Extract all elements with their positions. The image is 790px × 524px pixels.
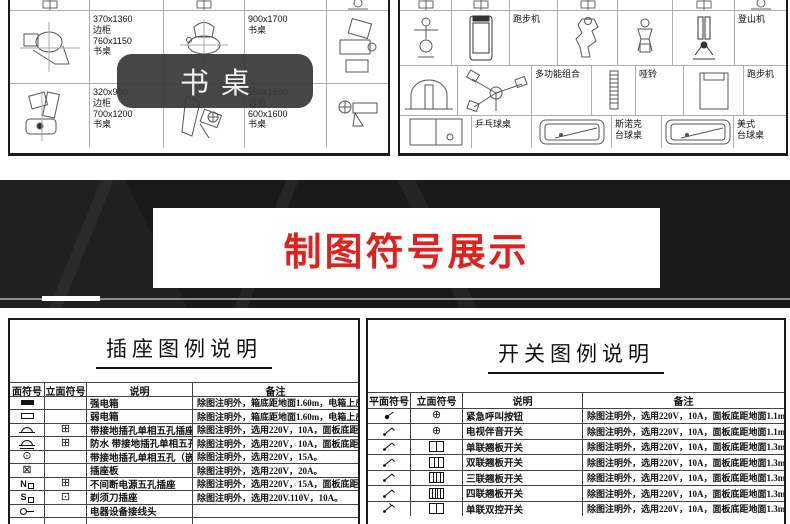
cad-catalog-page: 370x1360边柜760x1150书桌900x1700书桌320x900边柜7… — [0, 0, 790, 524]
switch-plan-symbol — [382, 457, 396, 468]
shaver-socket-sub — [28, 497, 34, 503]
cad-label: 哑铃 — [636, 66, 684, 116]
cad-row: 乒乓球桌斯诺克台球桌美式台球桌 — [400, 116, 786, 148]
elevation-symbol-cell — [44, 517, 86, 524]
stub-line-drawing — [673, 0, 735, 11]
legend-header-cell: 平面符号 — [368, 392, 410, 408]
legend-description: 四联翘板开关 — [462, 485, 582, 501]
elevation-symbol-cell — [410, 485, 462, 501]
banner-title-box: 制图符号展示 — [153, 208, 660, 288]
spinner-drawing — [458, 66, 532, 116]
section-banner: 制图符号展示 — [0, 180, 790, 308]
legend-description: 单联双控开关 — [462, 501, 582, 517]
machine-drawing — [558, 11, 618, 66]
legend-description: 紧急呼叫按钮 — [462, 408, 582, 424]
cad-empty-cell — [245, 0, 327, 11]
pingpong-drawing — [400, 116, 472, 148]
elevation-symbol-cell: ⊕ — [410, 423, 462, 439]
legend-description: 电器设备接线头 — [86, 504, 192, 518]
rocker-1-gang-symbol — [429, 503, 444, 514]
legend-description: 不间断电源五孔插座 — [86, 477, 192, 491]
elevation-symbol-cell: ⊞ — [44, 436, 86, 450]
switch-legend-title: 开关图例说明 — [488, 338, 664, 374]
waterproof-socket-symbol — [21, 440, 33, 446]
stub-chair-drawing — [735, 0, 786, 11]
circle-cross-symbol: ⊕ — [432, 410, 441, 421]
plan-symbol-cell — [368, 501, 410, 517]
legend-description: 电视伴音开关 — [462, 423, 582, 439]
legend-note: 除图注明外，选用220V.110V，10A。 — [192, 490, 358, 504]
legend-description: 带接地插孔单相五孔（嵌入地面） — [86, 450, 192, 464]
socket-elevation-symbol: ⊞ — [61, 478, 70, 489]
plan-symbol-cell — [368, 470, 410, 486]
elevation-symbol-cell — [410, 470, 462, 486]
switch-plan-symbol — [382, 472, 396, 483]
legend-header-cell: 说明 — [462, 392, 582, 408]
plan-symbol-cell: S — [10, 490, 44, 504]
cad-empty-cell — [618, 0, 673, 11]
cad-label: 跑步机 — [510, 11, 558, 66]
legend-description: 弱电箱 — [86, 409, 192, 423]
rack-drawing — [684, 66, 744, 116]
cad-label: 斯诺克台球桌 — [612, 116, 662, 148]
socket-legend-table: 插座图例说明 面符号立面符号说明备注强电箱除图注明外，箱底距地面1.60m，电箱… — [8, 318, 360, 524]
elevation-symbol-cell: ⊞ — [44, 477, 86, 491]
elevation-symbol-cell — [44, 450, 86, 464]
legend-note: 除图注明外，选用220V，10A，面板底距地0.30m。 — [192, 423, 358, 437]
arch-drawing — [400, 66, 458, 116]
legend-header-cell: 备注 — [582, 392, 784, 408]
circle-cross-symbol: ⊕ — [432, 426, 441, 437]
legend-description: 三联翘板开关 — [462, 470, 582, 486]
plan-symbol-cell: N — [10, 477, 44, 491]
switch-plan-symbol — [382, 488, 396, 499]
button-plan-symbol — [383, 411, 395, 421]
weak-electric-box-symbol — [21, 413, 34, 419]
legend-note: 除图注明外，选用220V，10A，面板底距地面1.3m。 — [582, 485, 784, 501]
rocker-2-gang-symbol — [429, 457, 444, 468]
legend-description: 剃须刀插座 — [86, 490, 192, 504]
rocker-4-gang-symbol — [429, 488, 444, 499]
desk3-drawing — [327, 11, 388, 84]
elevation-symbol-cell: ⊞ — [44, 423, 86, 437]
gym-cad-panel: 跑步机登山机多功能组合哑铃跑步机乒乓球桌斯诺克台球桌美式台球桌 — [398, 0, 788, 156]
legend-description: 防水 带接地插孔单相五孔插座 — [86, 436, 192, 450]
legend-note: 除图注明外，箱底距地面1.60m，电箱上皮不高于2.0m。 — [192, 409, 358, 423]
switch-legend-table: 开关图例说明 平面符号立面符号说明备注⊕紧急呼叫按钮除图注明外，选用220V，1… — [366, 318, 786, 524]
elevation-symbol-cell — [44, 396, 86, 410]
socket-legend-title-row: 插座图例说明 — [10, 320, 358, 382]
desk1-drawing — [10, 11, 90, 84]
plan-symbol-cell: ⊠ — [10, 463, 44, 477]
banner-white-dash — [42, 296, 100, 301]
cad-label: 跑步机 — [744, 66, 786, 116]
plan-symbol-cell — [368, 423, 410, 439]
plan-symbol-cell — [368, 439, 410, 455]
plan-symbol-cell — [10, 409, 44, 423]
elevation-symbol-cell: ⊡ — [44, 490, 86, 504]
cad-label: 美式台球桌 — [734, 116, 786, 148]
legend-note: 除图注明外，选用220V，10A，面板底距地面1.3m。 — [582, 454, 784, 470]
floor-socket-symbol: ⊙ — [22, 451, 31, 462]
desk-tag-overlay[interactable]: 书桌 — [117, 54, 313, 108]
ups-socket-sub — [28, 483, 34, 489]
legend-note: 除图注明外，选用220V，10A，面板底距地0.30m。 — [192, 436, 358, 450]
desk4-drawing — [10, 84, 90, 148]
five-hole-socket-symbol — [21, 427, 33, 433]
legend-note: 除图注明外，选用220V，10A，面板底距地面1.1m。 — [582, 408, 784, 424]
billiard-drawing — [662, 116, 734, 148]
legend-description: 强电箱 — [86, 396, 192, 410]
legend-note: 除图注明外，选用220V，10A，面板底距地面1.3m。 — [582, 439, 784, 455]
legend-note: 除图注明外，选用220V，10A，面板底距地面1.3m。 — [582, 470, 784, 486]
stub-line-drawing — [10, 0, 90, 11]
switch-plan-symbol — [382, 426, 396, 437]
stub-line-drawing — [452, 0, 510, 11]
cad-empty-cell — [90, 0, 164, 11]
desk6-drawing — [327, 84, 388, 148]
switch-plan-symbol — [382, 441, 396, 452]
plan-symbol-cell — [10, 504, 44, 518]
cad-row — [400, 0, 786, 11]
elevation-symbol-cell — [44, 409, 86, 423]
socket-panel-symbol: ⊠ — [22, 465, 31, 476]
legend-note: 除图注明外，选用220V，15A。 — [192, 450, 358, 464]
legend-note: 除图注明外，箱底距地面1.60m，电箱上皮不高于2.0m。 — [192, 396, 358, 410]
elevation-symbol-cell — [410, 439, 462, 455]
elevation-symbol-cell: ⊕ — [410, 408, 462, 424]
banner-title: 制图符号展示 — [283, 221, 529, 276]
machine-sm-drawing — [618, 11, 673, 66]
shaver-socket-symbol: S — [20, 492, 26, 502]
legend-description — [86, 517, 192, 524]
legend-description: 带接地插孔单相五孔插座 — [86, 423, 192, 437]
legend-description: 插座板 — [86, 463, 192, 477]
socket-elevation-symbol: ⊞ — [61, 438, 70, 449]
legend-note: 除图注明外，选用220V，10A，面板底距地面1.3m。 — [582, 501, 784, 517]
cad-label: 登山机 — [735, 11, 786, 66]
socket-legend-grid: 面符号立面符号说明备注强电箱除图注明外，箱底距地面1.60m，电箱上皮不高于2.… — [10, 382, 358, 524]
treadmill-drawing — [452, 11, 510, 66]
legend-note: 除图注明外，选用220V，15A，面板底距地0.30m。 — [192, 477, 358, 491]
ups-socket-symbol: N — [20, 479, 27, 489]
switch-legend-title-row: 开关图例说明 — [368, 320, 784, 392]
connector-symbol — [20, 507, 35, 514]
legend-note: 除图注明外，选用220V，20A。 — [192, 463, 358, 477]
cad-row: 多功能组合哑铃跑步机 — [400, 66, 786, 116]
plan-symbol-cell — [368, 485, 410, 501]
elevation-symbol-cell — [44, 504, 86, 518]
cad-label: 乒乓球桌 — [472, 116, 532, 148]
plan-symbol-cell — [10, 436, 44, 450]
plan-symbol-cell — [10, 396, 44, 410]
shaver-elevation-symbol: ⊡ — [61, 492, 70, 503]
elevation-symbol-cell — [410, 501, 462, 517]
legend-description: 双联翘板开关 — [462, 454, 582, 470]
strong-electric-box-symbol — [21, 400, 34, 405]
legend-note: 除图注明外，选用220V，10A，面板底距地面1.1m。 — [582, 423, 784, 439]
plan-symbol-cell — [368, 454, 410, 470]
stub-line-drawing — [400, 0, 452, 11]
stub-line-drawing — [558, 0, 618, 11]
legend-description: 单联翘板开关 — [462, 439, 582, 455]
billiard-drawing — [532, 116, 612, 148]
stub-chair-drawing — [327, 0, 388, 11]
legend-header-cell: 立面符号 — [410, 392, 462, 408]
cad-row: 跑步机登山机 — [400, 11, 786, 66]
socket-legend-title: 插座图例说明 — [96, 333, 272, 369]
plan-symbol-cell: ⊙ — [10, 450, 44, 464]
stub-line-drawing — [164, 0, 245, 11]
rocker-3-gang-symbol — [429, 472, 444, 483]
rocker-1-gang-symbol — [429, 441, 444, 452]
legend-note — [192, 504, 358, 518]
plan-symbol-cell — [10, 423, 44, 437]
cad-empty-cell — [510, 0, 558, 11]
plan-symbol-cell — [368, 408, 410, 424]
two-way-switch-plan-symbol — [382, 503, 396, 514]
cad-row — [10, 0, 388, 11]
desk-tag-label: 书桌 — [168, 60, 262, 102]
ladder-drawing — [592, 66, 636, 116]
plan-symbol-cell — [10, 517, 44, 524]
climber-drawing — [673, 11, 735, 66]
banner-divider-line — [0, 298, 790, 300]
socket-elevation-symbol: ⊞ — [61, 424, 70, 435]
switch-legend-grid: 平面符号立面符号说明备注⊕紧急呼叫按钮除图注明外，选用220V，10A，面板底距… — [368, 392, 784, 516]
figure-drawing — [400, 11, 452, 66]
legend-note — [192, 517, 358, 524]
cad-label: 多功能组合 — [532, 66, 592, 116]
elevation-symbol-cell — [410, 454, 462, 470]
elevation-symbol-cell — [44, 463, 86, 477]
